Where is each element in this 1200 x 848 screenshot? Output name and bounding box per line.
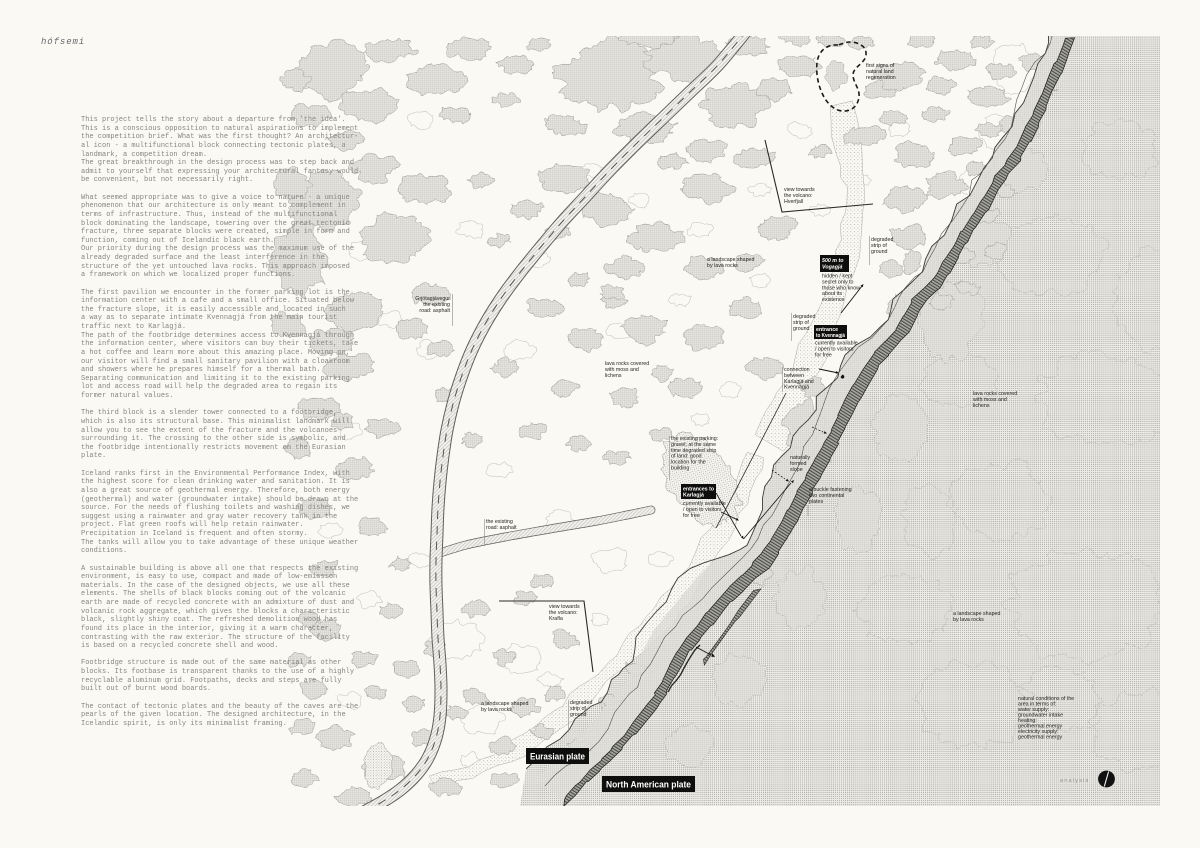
svg-text:hidden / keptsecret only totho: hidden / keptsecret only tothose who kno… <box>822 274 860 304</box>
svg-text:lava rocks coveredwith moss an: lava rocks coveredwith moss andlichens <box>605 361 649 379</box>
svg-text:Eurasian plate: Eurasian plate <box>530 752 585 762</box>
svg-text:first signs ofnatural landrege: first signs ofnatural landregeneration <box>866 63 896 81</box>
svg-text:view towardsthe volcano:Hverfj: view towardsthe volcano:Hverfjall <box>784 187 815 205</box>
svg-text:analysis: analysis <box>1060 778 1089 784</box>
svg-text:degradedstrip ofground: degradedstrip ofground <box>871 237 893 255</box>
svg-text:view towardsthe volcano:Krafla: view towardsthe volcano:Krafla <box>549 604 580 622</box>
svg-text:Grjótagjávegurthe existingroad: Grjótagjávegurthe existingroad: asphalt <box>415 296 450 314</box>
svg-text:the existingroad: asphalt: the existingroad: asphalt <box>486 519 517 531</box>
svg-text:500 m toVogagjá: 500 m toVogagjá <box>822 258 844 271</box>
svg-text:North American plate: North American plate <box>606 780 691 790</box>
